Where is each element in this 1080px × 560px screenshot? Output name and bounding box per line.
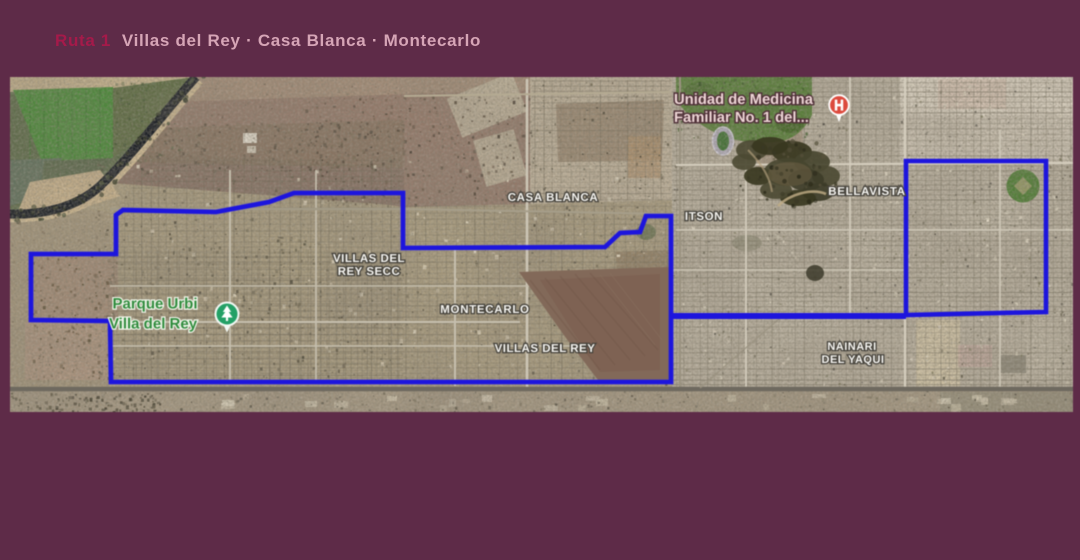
svg-text:VILLAS DEL REY: VILLAS DEL REY	[495, 343, 596, 355]
svg-text:ITSON: ITSON	[685, 211, 723, 223]
svg-text:CASA BLANCA: CASA BLANCA	[508, 192, 599, 204]
svg-text:BELLAVISTA: BELLAVISTA	[828, 186, 906, 198]
svg-text:Villa del Rey: Villa del Rey	[109, 316, 198, 333]
svg-text:REY SECC: REY SECC	[338, 266, 401, 278]
svg-text:MONTECARLO: MONTECARLO	[440, 304, 529, 316]
svg-text:Familiar No. 1 del...: Familiar No. 1 del...	[674, 110, 809, 126]
svg-text:Unidad de Medicina: Unidad de Medicina	[674, 92, 814, 108]
svg-text:VILLAS DEL: VILLAS DEL	[333, 253, 405, 265]
svg-text:Parque Urbi: Parque Urbi	[112, 296, 197, 313]
svg-text:NAINARI: NAINARI	[827, 341, 876, 353]
svg-text:DEL YAQUI: DEL YAQUI	[822, 354, 885, 366]
